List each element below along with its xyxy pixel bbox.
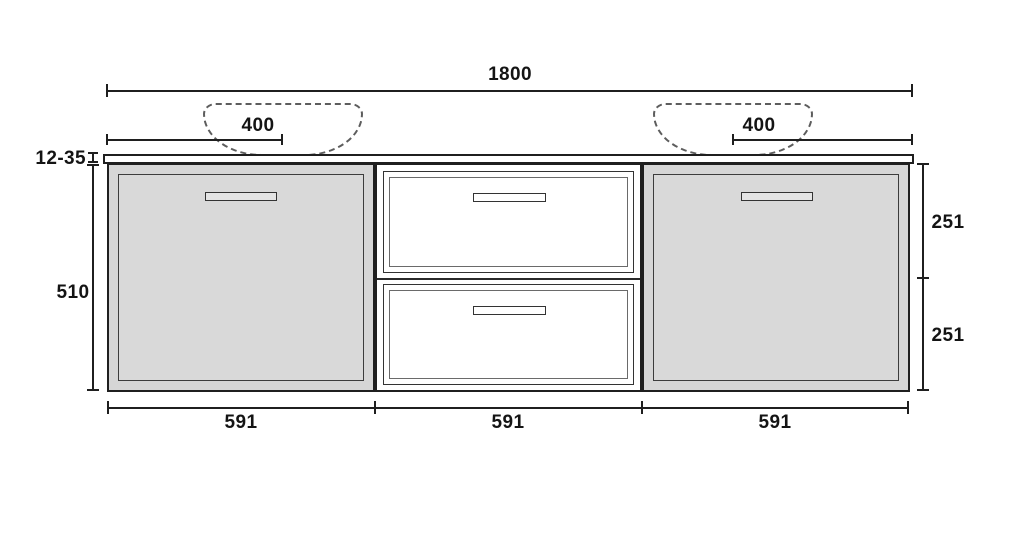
left-door-panel <box>118 174 364 381</box>
dim-sections-tick-1 <box>107 401 109 414</box>
top-drawer-panel <box>389 177 628 267</box>
dim-cabinet-height-line <box>92 165 94 391</box>
bottom-drawer <box>383 284 634 385</box>
left-door-handle <box>205 192 277 201</box>
drawer-section <box>375 163 642 392</box>
dim-left-section-label: 591 <box>191 413 291 433</box>
cabinet-body <box>107 163 910 392</box>
dim-right-upper-label: 251 <box>923 213 973 233</box>
dim-thickness-label: 12-35 <box>26 149 86 169</box>
right-door-panel <box>653 174 899 381</box>
dim-sections-tick-2 <box>374 401 376 414</box>
dim-cabinet-height-tick-bottom <box>87 389 99 391</box>
dim-basin-left-line <box>107 139 283 141</box>
drawer-divider <box>377 278 640 280</box>
dim-sections-tick-3 <box>641 401 643 414</box>
dim-overall-width-tick-left <box>106 84 108 97</box>
dim-overall-width-tick-right <box>911 84 913 97</box>
dim-basin-left-tick-left <box>106 134 108 145</box>
dim-thickness-tick-top <box>88 152 98 154</box>
top-drawer-handle <box>473 193 546 202</box>
dim-right-heights-tick-middle <box>917 277 929 279</box>
dim-middle-section-label: 591 <box>458 413 558 433</box>
bottom-drawer-panel <box>389 290 628 379</box>
dim-right-heights-tick-top <box>917 163 929 165</box>
top-drawer <box>383 171 634 273</box>
dim-basin-right-tick-right <box>911 134 913 145</box>
vanity-dimension-diagram: 1800 400 400 12-35 510 <box>0 0 1024 551</box>
right-door <box>642 163 910 392</box>
dim-cabinet-height-label: 510 <box>48 283 98 303</box>
dim-overall-width-line <box>107 90 913 92</box>
dim-basin-right-line <box>733 139 913 141</box>
dim-right-heights-tick-bottom <box>917 389 929 391</box>
dim-right-section-label: 591 <box>725 413 825 433</box>
bottom-drawer-handle <box>473 306 546 315</box>
dim-right-lower-label: 251 <box>923 326 973 346</box>
dim-basin-right-label: 400 <box>709 116 809 136</box>
dim-sections-tick-4 <box>907 401 909 414</box>
dim-basin-left-label: 400 <box>208 116 308 136</box>
dim-sections-line <box>108 407 909 409</box>
left-door <box>107 163 375 392</box>
dim-thickness-tick-bottom <box>88 161 98 163</box>
countertop <box>103 154 914 164</box>
dim-overall-width-label: 1800 <box>460 65 560 85</box>
right-door-handle <box>741 192 813 201</box>
dim-cabinet-height-tick-top <box>87 164 99 166</box>
